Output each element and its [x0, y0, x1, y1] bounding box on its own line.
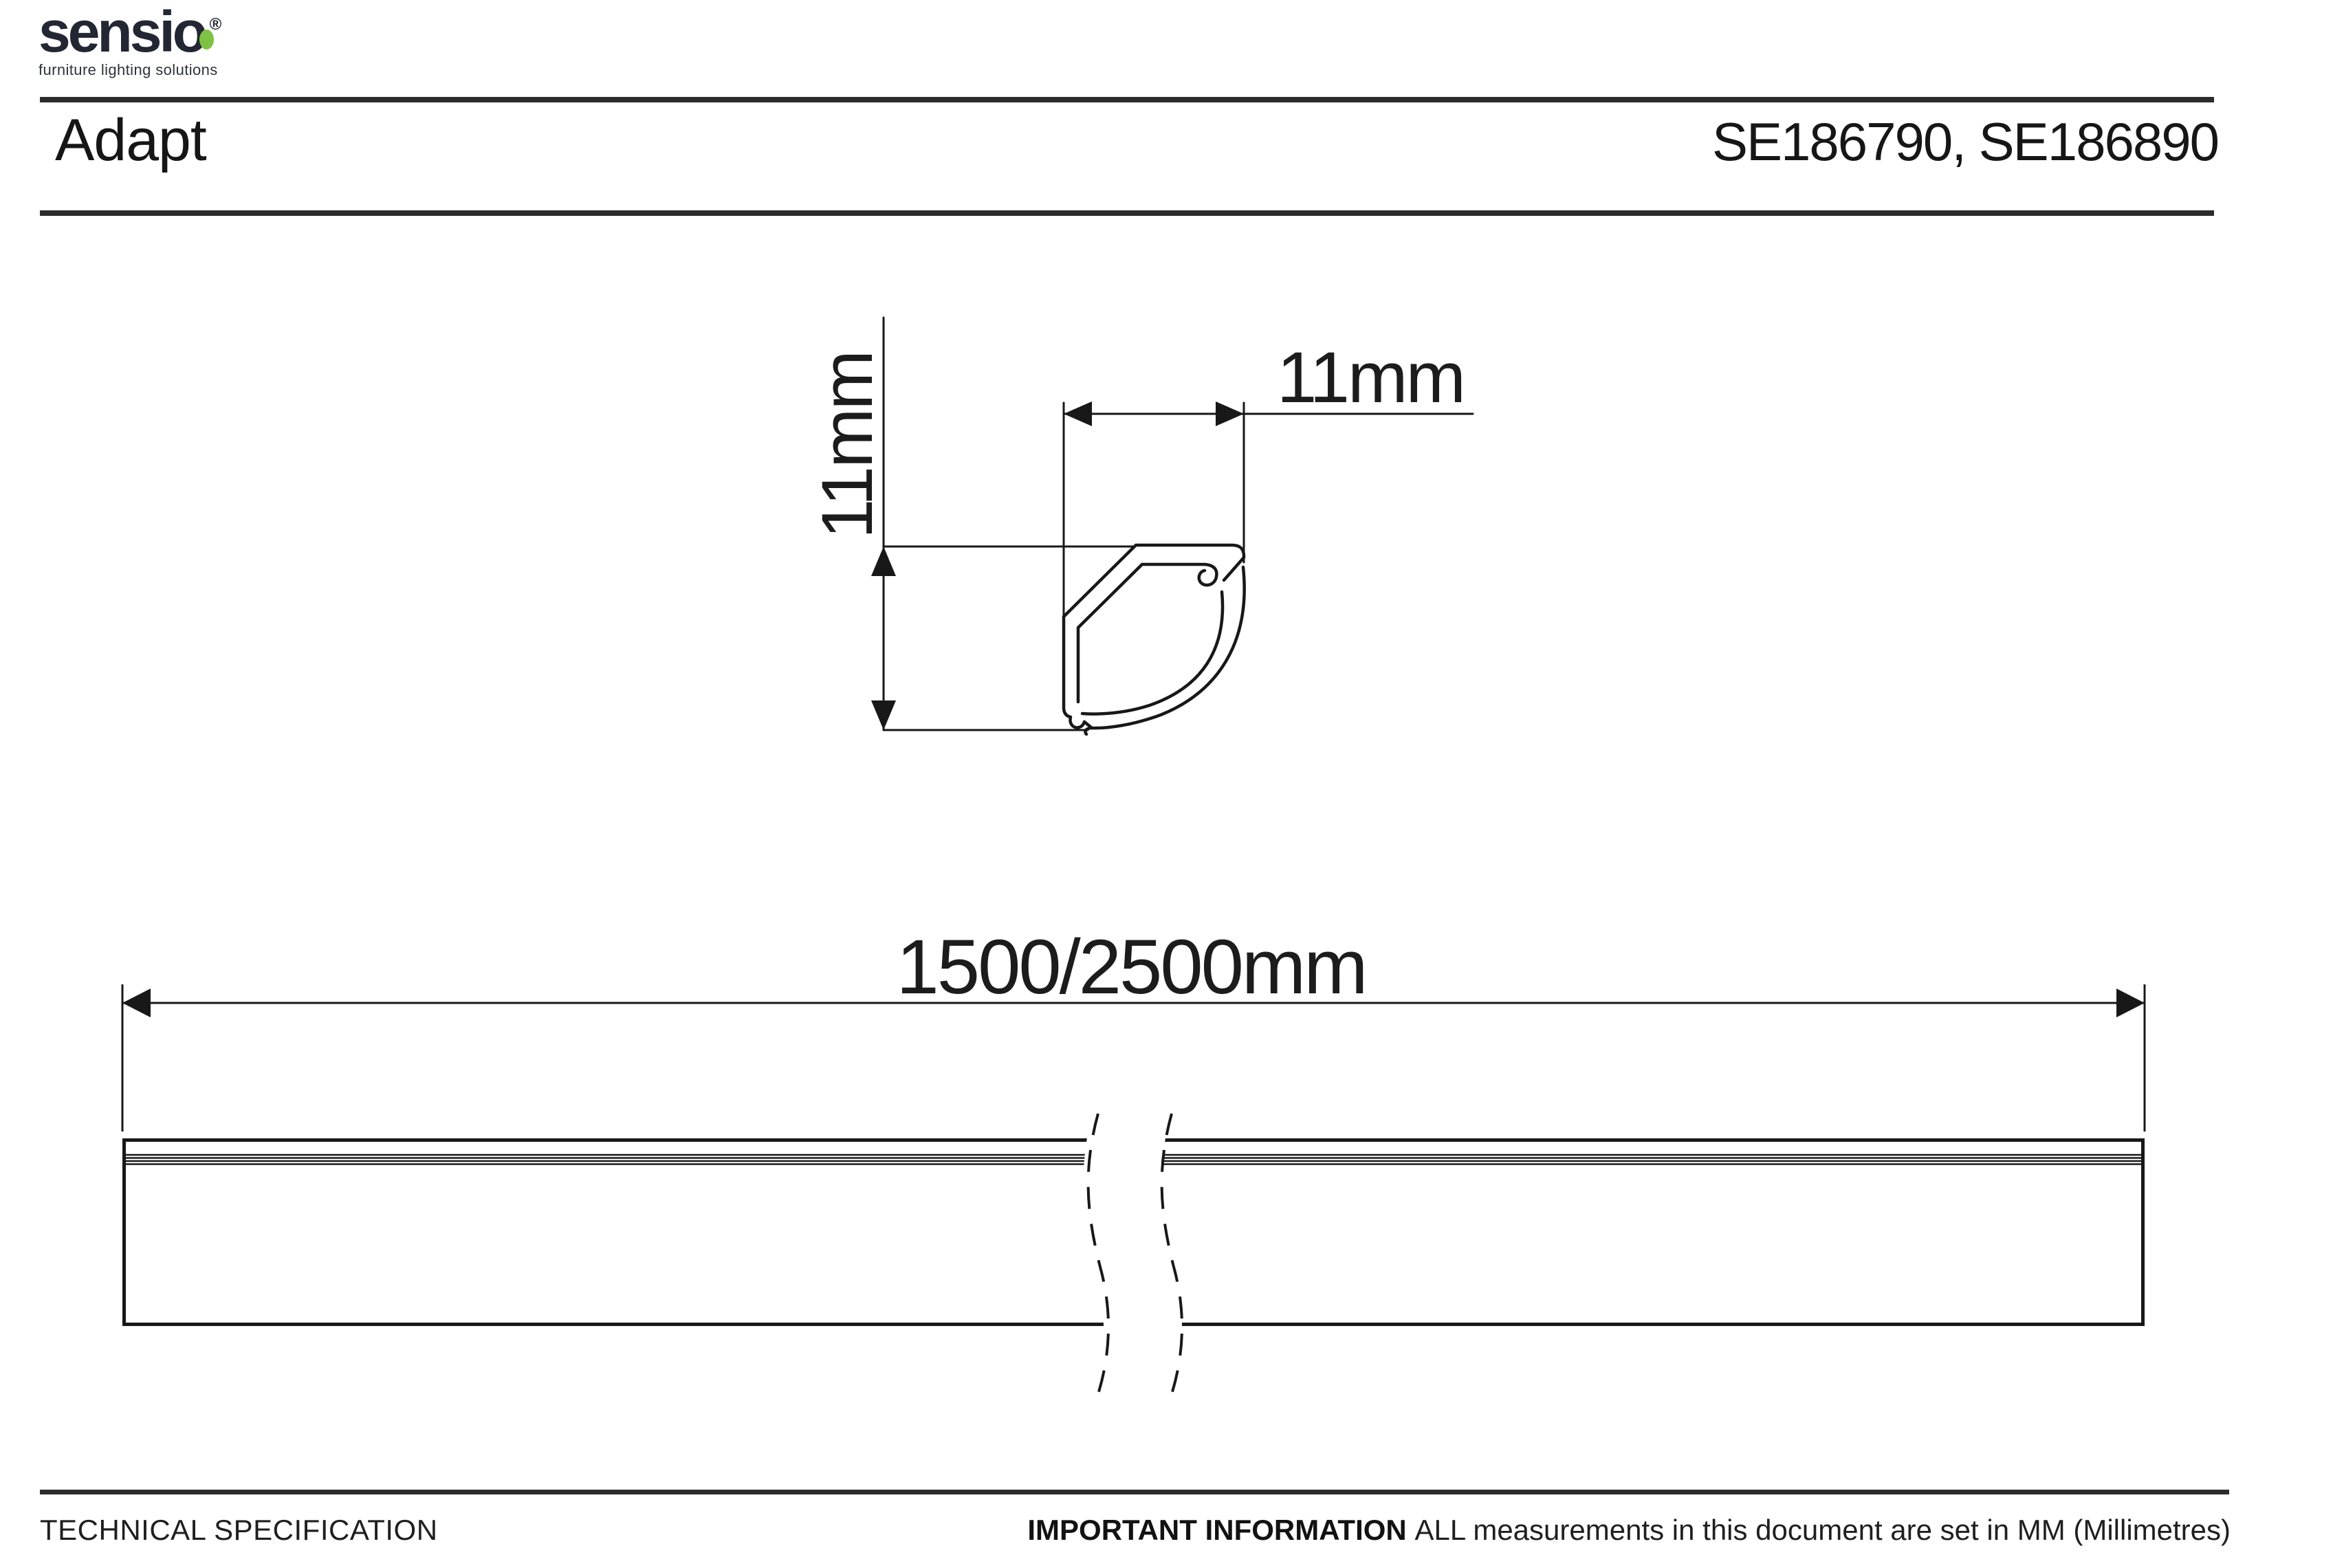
profile-back-inner-outline-and-hook [1078, 564, 1216, 702]
width-arrow-left-icon [1064, 401, 1092, 426]
width-arrow-right-icon [1216, 401, 1244, 426]
diffuser-inner-arc [1082, 592, 1223, 714]
footer-rule [40, 1490, 2229, 1494]
profile-length-label: 1500/2500mm [896, 924, 1366, 1010]
spec-sheet-page: sensio ® furniture lighting solutions Ad… [0, 0, 2333, 1568]
break-gap-mask [1084, 1108, 1182, 1394]
length-arrow-right-icon [2116, 989, 2145, 1017]
footer-row: TECHNICAL SPECIFICATION IMPORTANT INFORM… [40, 1514, 2231, 1547]
length-arrow-left-icon [122, 989, 151, 1017]
height-arrow-down-icon [871, 700, 896, 730]
profile-back-outer-outline [1064, 545, 1244, 617]
footer-important-information: IMPORTANT INFORMATIONALL measurements in… [1027, 1514, 2231, 1547]
height-arrow-up-icon [871, 546, 896, 576]
footer-section-label: TECHNICAL SPECIFICATION [40, 1514, 438, 1547]
cross-section-width-label: 11mm [1277, 338, 1464, 418]
footer-important-text: ALL measurements in this document are se… [1415, 1514, 2231, 1546]
footer-important-label: IMPORTANT INFORMATION [1027, 1514, 1406, 1546]
cross-section-height-label: 11mm [807, 352, 888, 539]
profile-length-drawing [122, 984, 2145, 1394]
technical-drawing-canvas: 11mm 11mm 1500/2500mm [0, 0, 2333, 1568]
